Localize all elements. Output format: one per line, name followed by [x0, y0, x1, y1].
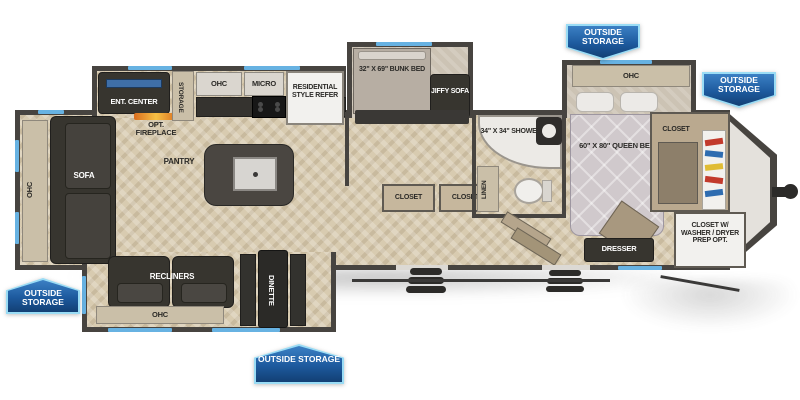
window-accent [15, 140, 19, 172]
ent-center-label: ENT. CENTER [98, 98, 170, 106]
recliner [172, 256, 234, 308]
window-accent [15, 212, 19, 244]
window-accent [376, 42, 432, 46]
bath-wall-right [562, 110, 566, 218]
sink-icon [233, 157, 277, 191]
shower-label: 34" X 34" SHOWER [480, 128, 542, 136]
outside-storage-label: OUTSIDE STORAGE [566, 28, 640, 46]
bath-wall-bottom [472, 214, 566, 218]
bunk-bed [353, 48, 431, 114]
wardrobe-closet-label: CLOSET [652, 126, 700, 134]
bunk-bed-label: 32" X 69" BUNK BED [353, 66, 431, 74]
sofa-cushion [65, 193, 111, 259]
window-accent [600, 60, 652, 64]
dinette-bench [290, 254, 306, 326]
entertainment-center [98, 72, 170, 114]
window-accent [244, 66, 300, 70]
ground-shadow-front [620, 280, 800, 330]
bed-pillow [620, 92, 658, 112]
dresser-label: DRESSER [584, 245, 654, 253]
micro-label: MICRO [244, 80, 284, 88]
outside-storage-label: OUTSIDE STORAGE [254, 355, 344, 364]
window-accent [108, 328, 172, 332]
outside-storage-badge: OUTSIDE STORAGE [6, 278, 80, 314]
hanging-clothes [702, 130, 726, 210]
outside-storage-label: OUTSIDE STORAGE [702, 76, 776, 94]
kitchen-island [204, 144, 294, 206]
toilet-tank-icon [542, 180, 552, 202]
pantry-label: PANTRY [146, 158, 212, 167]
hitch-ball-icon [783, 184, 798, 199]
recliner-cushion [117, 283, 163, 303]
window-accent [128, 66, 172, 70]
jiffy-sofa-label: JIFFY SOFA [430, 88, 470, 96]
dinette-label: DINETTE [267, 258, 275, 322]
window-accent [82, 276, 86, 314]
wardrobe-shelves [658, 142, 698, 204]
outside-storage-badge: OUTSIDE STORAGE [566, 24, 640, 60]
outside-storage-label: OUTSIDE STORAGE [6, 289, 80, 307]
closet-washer-dryer-label: CLOSET W/ WASHER / DRYER PREP OPT. [676, 222, 744, 245]
sofa-label: SOFA [56, 172, 112, 181]
stove-icon [252, 96, 286, 118]
recliner [108, 256, 170, 308]
toilet-icon [514, 178, 544, 204]
linen-label: LINEN [481, 170, 488, 210]
window-accent [212, 328, 280, 332]
awning-rail [352, 279, 610, 282]
refer-label: RESIDENTIAL STYLE REFER [288, 84, 342, 99]
bunk-room-wall [345, 112, 349, 186]
under-bunk-storage [355, 110, 469, 124]
bunk-pillow [358, 51, 426, 60]
recliners-label: RECLINERS [122, 273, 222, 282]
shower-head-icon [536, 117, 562, 145]
dinette-bench [240, 254, 256, 326]
outside-storage-badge: OUTSIDE STORAGE [254, 344, 344, 384]
bed-pillow [576, 92, 614, 112]
sofa [50, 116, 116, 264]
storage-label: STORAGE [177, 74, 184, 120]
closet-left-label: CLOSET [382, 194, 435, 202]
floorplan: OHC SOFA ENT. CENTER OPT. FIREPLACE STOR… [0, 0, 800, 400]
lower-ohc-label: OHC [96, 311, 224, 319]
bath-wall-left [472, 110, 476, 218]
bedroom-ohc-label: OHC [572, 72, 690, 80]
kitchen-ohc-label: OHC [196, 80, 242, 88]
tv-icon [106, 79, 162, 88]
recliner-cushion [181, 283, 227, 303]
entry-steps-icon [546, 270, 584, 294]
entry-steps-icon [406, 268, 446, 296]
outside-storage-badge: OUTSIDE STORAGE [702, 72, 776, 108]
rear-ohc-label: OHC [26, 160, 34, 220]
window-accent [38, 110, 64, 114]
window-accent [618, 266, 662, 270]
opt-fireplace-label: OPT. FIREPLACE [130, 121, 182, 137]
